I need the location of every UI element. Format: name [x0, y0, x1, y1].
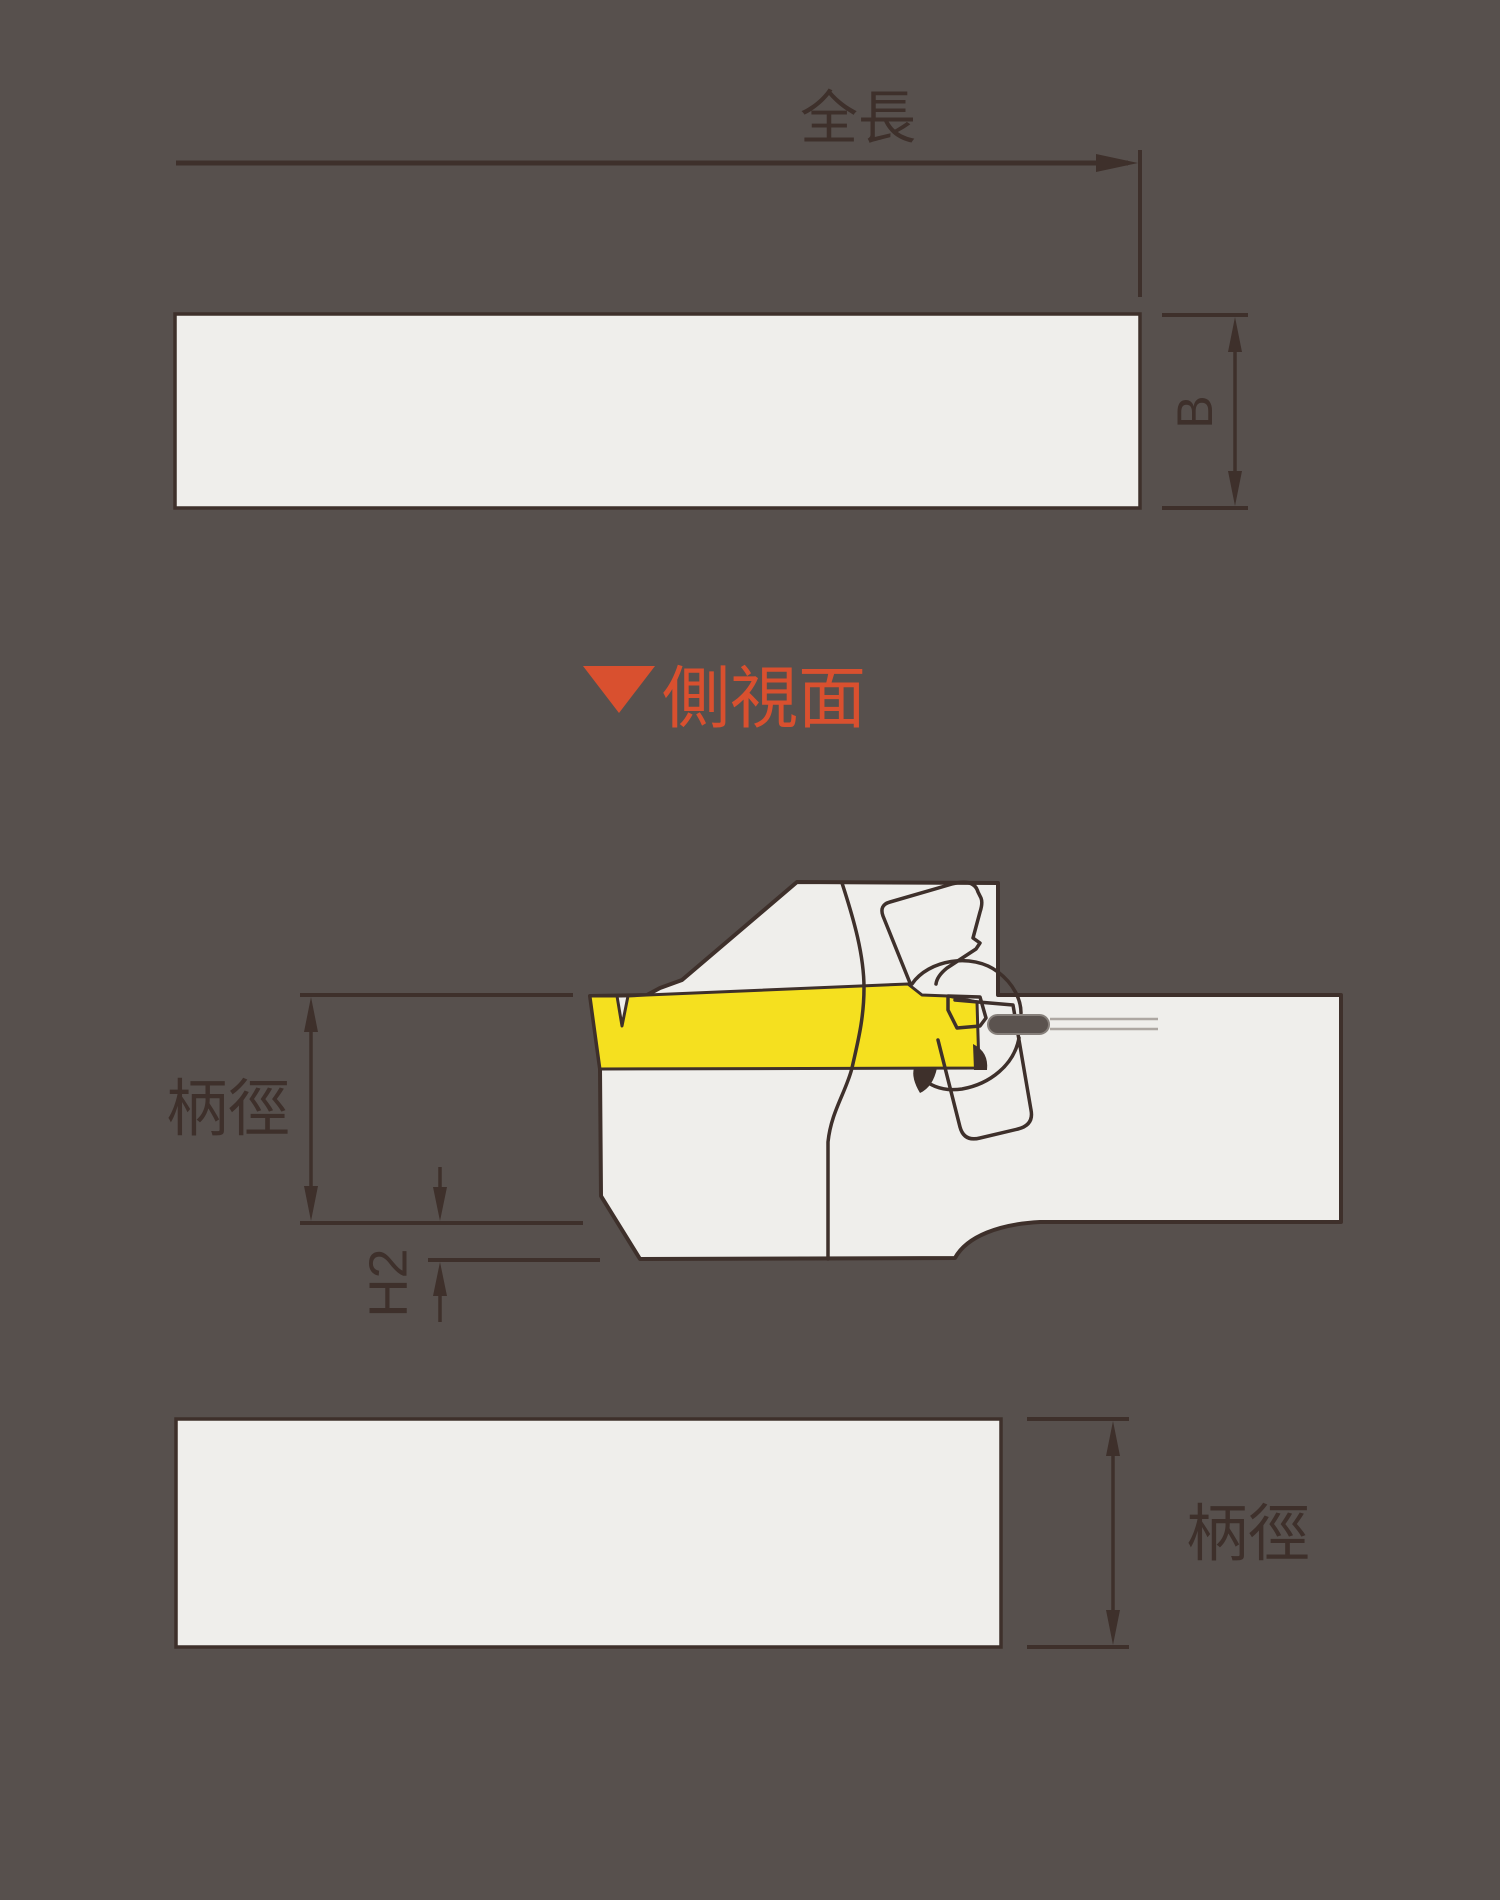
holder-bar-top-view [175, 314, 1140, 508]
shank-diameter-label: 柄徑 [166, 1075, 290, 1144]
top-view: 全長 B [175, 86, 1248, 508]
side-view: 柄徑 H2 [166, 882, 1341, 1322]
technical-drawing-canvas: 全長 B 側視面 [0, 0, 1500, 1900]
side-view-label: 側視面 [662, 661, 866, 737]
overall-length-label: 全長 [800, 86, 916, 151]
tool-body-silhouette [590, 882, 1341, 1259]
lock-pin [988, 1015, 1049, 1034]
side-view-marker: 側視面 [583, 661, 866, 737]
arrow-up-icon [304, 997, 318, 1032]
tool-holder-drawing: 全長 B 側視面 [0, 0, 1500, 1900]
arrow-down-icon [304, 1186, 318, 1221]
bottom-view: 柄徑 [176, 1419, 1310, 1647]
shank-diameter-dimension-left: 柄徑 [166, 995, 583, 1223]
shank-bottom-view [176, 1419, 1001, 1647]
cutting-insert [590, 984, 979, 1069]
h2-dimension: H2 [358, 1167, 600, 1322]
h2-label: H2 [358, 1248, 418, 1317]
arrow-right-icon [1096, 154, 1138, 172]
overall-length-dimension: 全長 [176, 86, 1140, 297]
shank-diameter-label: 柄徑 [1186, 1500, 1310, 1569]
shank-diameter-dimension-bottom: 柄徑 [1027, 1419, 1310, 1647]
arrow-down-icon [1228, 471, 1242, 506]
arrow-down-icon [433, 1187, 447, 1221]
arrow-up-icon [1106, 1421, 1120, 1456]
width-b-dimension: B [1162, 315, 1248, 508]
arrow-down-icon [1106, 1610, 1120, 1645]
width-b-label: B [1167, 395, 1223, 428]
down-triangle-icon [583, 666, 655, 713]
arrow-up-icon [1228, 317, 1242, 352]
